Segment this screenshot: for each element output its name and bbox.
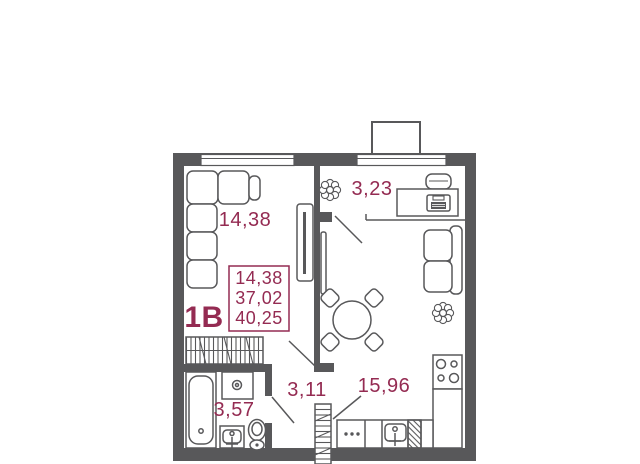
bathroom-area-label: 3,57	[214, 399, 255, 421]
wall-bottom-left	[173, 448, 315, 461]
kitchen-area-label: 15,96	[358, 375, 411, 397]
kitchen-tv-icon	[321, 232, 326, 294]
tv-stand-icon	[297, 204, 313, 281]
hall-area-label: 3,23	[352, 178, 393, 200]
dining-table-icon	[333, 301, 371, 339]
floor-plan-canvas: 14,38 3,23 3,11 15,96 3,57 1В 14,38 37,0…	[0, 0, 640, 464]
entrance-hatch	[315, 404, 331, 464]
stove-icon	[433, 355, 462, 389]
door-living	[289, 341, 316, 367]
laptop-icon	[427, 195, 450, 211]
corridor-area-label: 3,11	[287, 379, 326, 401]
bathtub-icon	[186, 372, 216, 448]
kitchen-furniture	[319, 226, 462, 448]
wall-bottom-right	[331, 448, 476, 461]
counter-right	[433, 389, 462, 448]
wall-living-partition	[314, 166, 320, 372]
dishwasher-icon	[408, 420, 421, 448]
vent-shaft	[372, 122, 420, 154]
unit-area-living: 14,38	[235, 268, 283, 288]
desk-chair-icon	[426, 174, 451, 189]
unit-area-sub: 37,02	[235, 288, 283, 308]
drawer-dots	[344, 432, 359, 435]
washing-machine-icon	[222, 372, 253, 399]
wall-right	[465, 153, 476, 461]
wall-bathroom-right-upper	[265, 372, 272, 396]
wall-corner-stub	[314, 363, 334, 372]
window-kitchen	[357, 155, 446, 166]
counter-bottom	[337, 420, 433, 448]
living-area-label: 14,38	[219, 209, 272, 231]
bathroom-sink-icon	[220, 426, 244, 448]
wardrobe-icon	[186, 337, 263, 364]
unit-area-total: 40,25	[235, 308, 283, 328]
unit-type-label: 1В	[184, 301, 223, 334]
toilet-icon	[249, 420, 266, 451]
wall-bathroom-right-lower	[265, 423, 272, 448]
window-living	[201, 155, 294, 166]
floor-plan: 14,38 3,23 3,11 15,96 3,57 1В 14,38 37,0…	[0, 0, 640, 464]
wall-bathroom-top	[184, 364, 272, 372]
kitchen-leader-line	[333, 396, 361, 419]
plant-icon	[432, 302, 453, 323]
kitchen-sofa-icon	[424, 226, 462, 294]
wall-hall-stub	[314, 212, 332, 222]
wall-left	[173, 153, 184, 461]
plant-icon	[319, 179, 340, 200]
door-hall-kitchen	[335, 216, 362, 243]
